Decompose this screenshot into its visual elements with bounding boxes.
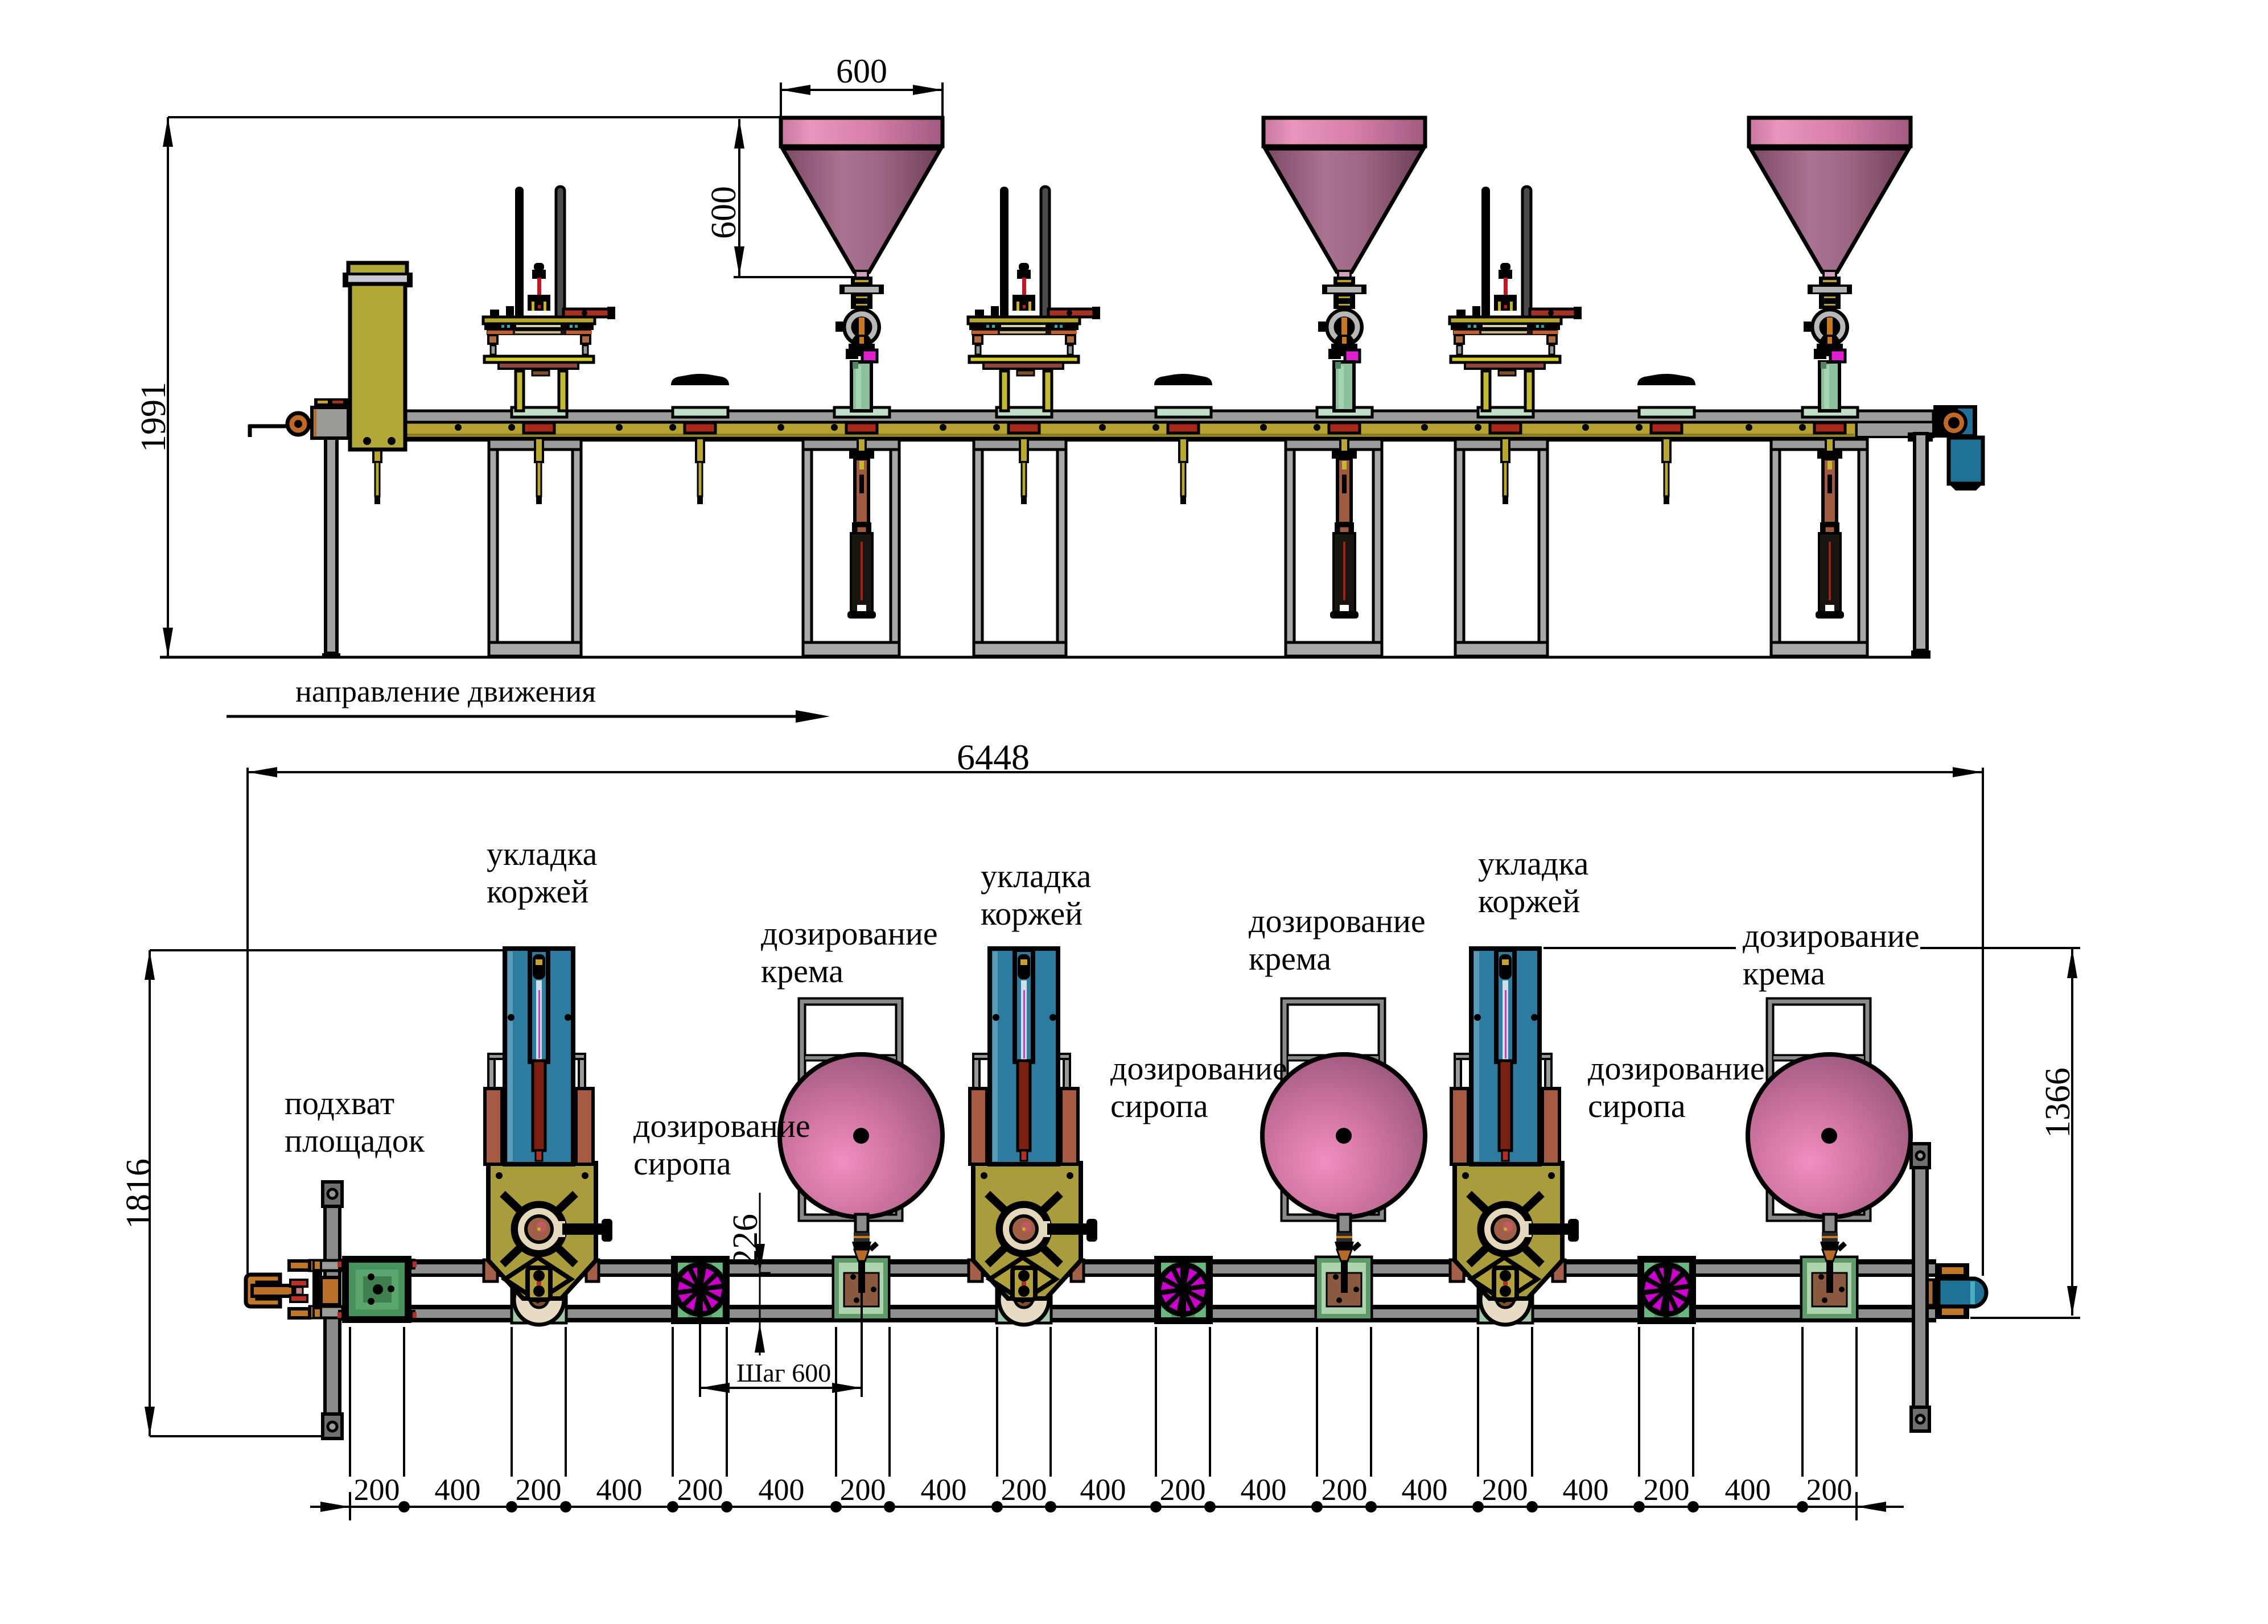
svg-text:200: 200 <box>677 1473 723 1507</box>
svg-text:1991: 1991 <box>134 382 173 452</box>
svg-text:226: 226 <box>726 1214 765 1267</box>
svg-text:200: 200 <box>840 1473 886 1507</box>
svg-text:дозирование: дозирование <box>1249 902 1426 939</box>
svg-text:600: 600 <box>705 186 743 239</box>
svg-text:коржей: коржей <box>981 895 1082 932</box>
svg-text:Шаг 600: Шаг 600 <box>736 1358 831 1387</box>
svg-text:площадок: площадок <box>285 1122 425 1159</box>
svg-text:дозирование: дозирование <box>1743 917 1920 954</box>
svg-text:400: 400 <box>1402 1473 1448 1507</box>
svg-text:крема: крема <box>761 953 843 990</box>
svg-text:400: 400 <box>1080 1473 1126 1507</box>
svg-text:дозирование: дозирование <box>761 915 938 952</box>
svg-text:600: 600 <box>836 52 887 90</box>
svg-text:крема: крема <box>1743 955 1825 992</box>
svg-text:400: 400 <box>921 1473 967 1507</box>
svg-text:направление движения: направление движения <box>295 674 596 708</box>
svg-text:400: 400 <box>596 1473 643 1507</box>
svg-text:1816: 1816 <box>120 1159 158 1229</box>
svg-text:дозирование: дозирование <box>633 1107 810 1144</box>
svg-text:сиропа: сиропа <box>1588 1087 1686 1124</box>
svg-text:400: 400 <box>1725 1473 1771 1507</box>
svg-text:400: 400 <box>1563 1473 1609 1507</box>
svg-text:подхват: подхват <box>285 1085 394 1122</box>
svg-text:200: 200 <box>1160 1473 1206 1507</box>
svg-text:крема: крема <box>1249 940 1331 977</box>
svg-text:1366: 1366 <box>2039 1067 2077 1138</box>
svg-text:укладка: укладка <box>1478 845 1588 882</box>
svg-text:400: 400 <box>759 1473 805 1507</box>
svg-text:укладка: укладка <box>487 835 597 872</box>
svg-text:коржей: коржей <box>1478 883 1580 920</box>
svg-text:сиропа: сиропа <box>633 1145 731 1182</box>
svg-text:200: 200 <box>1644 1473 1690 1507</box>
svg-text:200: 200 <box>1806 1473 1853 1507</box>
svg-text:200: 200 <box>1322 1473 1368 1507</box>
svg-text:дозирование: дозирование <box>1110 1050 1287 1087</box>
svg-text:200: 200 <box>354 1473 400 1507</box>
svg-text:сиропа: сиропа <box>1110 1087 1208 1124</box>
svg-text:200: 200 <box>1482 1473 1528 1507</box>
svg-text:коржей: коржей <box>487 873 588 910</box>
svg-text:200: 200 <box>516 1473 562 1507</box>
svg-text:400: 400 <box>435 1473 481 1507</box>
svg-text:200: 200 <box>1001 1473 1047 1507</box>
svg-text:6448: 6448 <box>957 737 1030 777</box>
svg-text:400: 400 <box>1241 1473 1287 1507</box>
svg-text:укладка: укладка <box>981 858 1091 895</box>
svg-text:дозирование: дозирование <box>1588 1050 1765 1087</box>
